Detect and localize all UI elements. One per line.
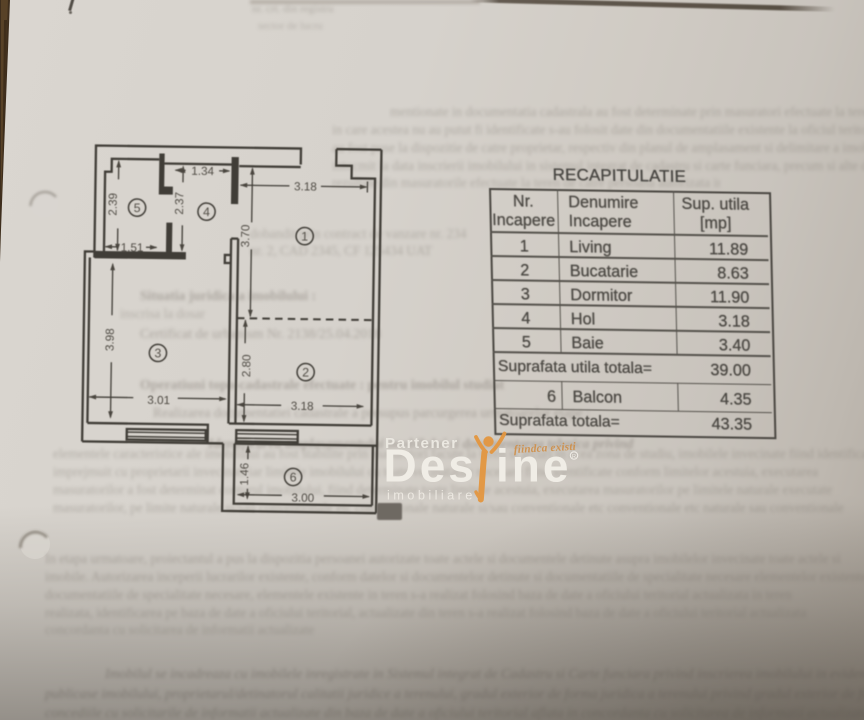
svg-text:2.39: 2.39 [106, 193, 119, 216]
svg-text:3.01: 3.01 [147, 394, 170, 407]
svg-text:3: 3 [154, 346, 161, 360]
svg-text:3.70: 3.70 [239, 224, 252, 247]
svg-text:2.37: 2.37 [173, 192, 186, 215]
svg-text:5: 5 [134, 201, 141, 215]
svg-text:3.18: 3.18 [294, 180, 317, 193]
svg-text:2: 2 [302, 365, 309, 379]
svg-text:R: R [572, 454, 576, 460]
svg-text:3.98: 3.98 [103, 328, 116, 351]
svg-text:1.46: 1.46 [238, 463, 251, 486]
svg-text:1.51: 1.51 [121, 241, 144, 254]
svg-text:2.80: 2.80 [240, 354, 253, 377]
svg-text:3.18: 3.18 [291, 400, 314, 413]
svg-text:1.34: 1.34 [191, 165, 214, 178]
svg-text:imobiliare: imobiliare [387, 488, 476, 503]
svg-text:Des: Des [384, 440, 477, 492]
svg-text:3.00: 3.00 [291, 491, 314, 504]
svg-text:1: 1 [301, 229, 308, 243]
svg-text:6: 6 [290, 470, 297, 484]
svg-text:4: 4 [203, 205, 210, 219]
